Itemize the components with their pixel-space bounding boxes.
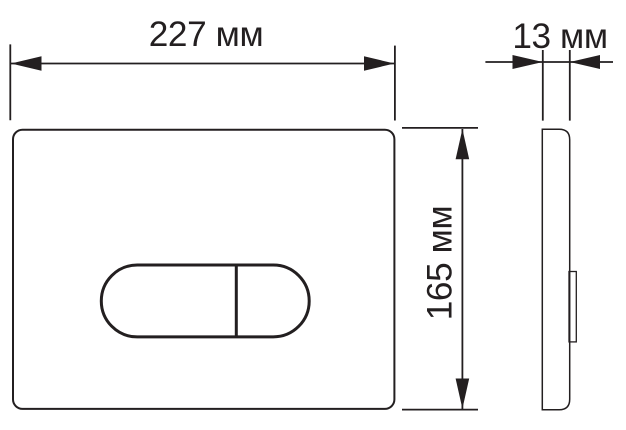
svg-text:13 мм: 13 мм xyxy=(512,17,607,56)
svg-text:227 мм: 227 мм xyxy=(149,15,263,54)
svg-text:165 мм: 165 мм xyxy=(420,206,459,320)
